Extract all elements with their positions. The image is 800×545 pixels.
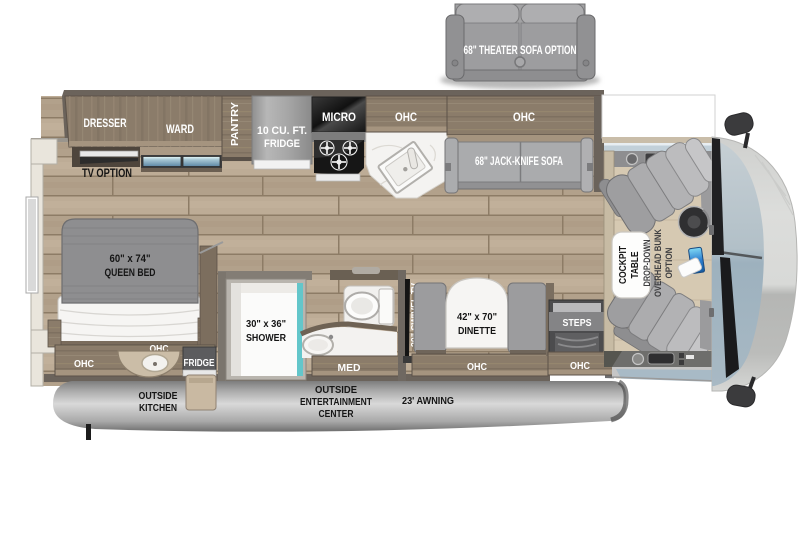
svg-text:23' AWNING: 23' AWNING [402, 395, 454, 407]
svg-text:OUTSIDE: OUTSIDE [139, 391, 178, 402]
svg-text:COCKPIT: COCKPIT [618, 246, 629, 284]
svg-text:68" JACK-KNIFE SOFA: 68" JACK-KNIFE SOFA [475, 156, 563, 168]
svg-text:OHC: OHC [467, 361, 487, 373]
svg-text:OHC: OHC [74, 358, 94, 370]
svg-text:30" x 36": 30" x 36" [246, 318, 286, 330]
svg-text:DINETTE: DINETTE [458, 325, 496, 337]
svg-text:FRIDGE: FRIDGE [264, 138, 300, 150]
svg-text:OUTSIDE: OUTSIDE [315, 385, 357, 396]
svg-text:OPTION: OPTION [664, 248, 674, 279]
svg-text:SHOWER: SHOWER [246, 332, 286, 344]
svg-text:STEPS: STEPS [563, 317, 592, 329]
svg-text:10 CU. FT.: 10 CU. FT. [257, 125, 307, 137]
svg-text:TABLE: TABLE [630, 251, 641, 278]
svg-text:ENTERTAINMENT: ENTERTAINMENT [300, 397, 372, 408]
svg-text:WARD: WARD [166, 124, 194, 136]
svg-text:42" x 70": 42" x 70" [457, 311, 497, 323]
svg-text:KITCHEN: KITCHEN [139, 403, 177, 414]
svg-text:CENTER: CENTER [319, 409, 355, 420]
svg-text:QUEEN BED: QUEEN BED [105, 267, 156, 279]
svg-text:OHC: OHC [570, 360, 590, 372]
svg-text:DRESSER: DRESSER [84, 118, 128, 130]
svg-text:60" x 74": 60" x 74" [110, 253, 151, 265]
svg-text:OVERHEAD BUNK: OVERHEAD BUNK [653, 229, 663, 297]
svg-text:PANTRY: PANTRY [229, 102, 241, 146]
svg-text:68" THEATER SOFA OPTION: 68" THEATER SOFA OPTION [464, 43, 577, 57]
svg-text:MICRO: MICRO [322, 112, 356, 124]
svg-text:MED: MED [338, 362, 361, 374]
svg-text:OHC: OHC [395, 112, 417, 124]
svg-text:DROP-DOWN: DROP-DOWN [642, 240, 652, 287]
svg-text:OHC: OHC [513, 112, 535, 124]
svg-text:TV OPTION: TV OPTION [82, 168, 132, 180]
svg-text:FRIDGE: FRIDGE [184, 358, 215, 369]
